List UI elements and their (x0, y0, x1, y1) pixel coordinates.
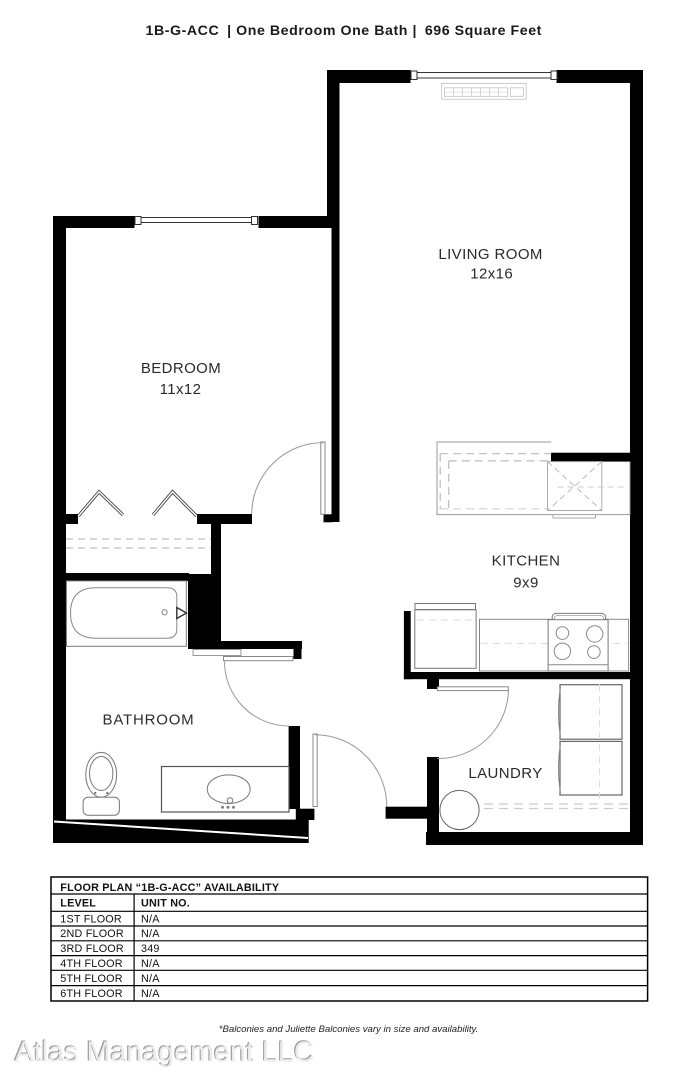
svg-text:BEDROOM: BEDROOM (141, 360, 221, 377)
svg-text:LEVEL: LEVEL (60, 898, 96, 910)
svg-text:UNIT NO.: UNIT NO. (141, 898, 190, 910)
svg-text:LAUNDRY: LAUNDRY (468, 765, 542, 782)
svg-text:*Balconies and Juliette Balcon: *Balconies and Juliette Balconies vary i… (219, 1024, 479, 1035)
svg-text:12x16: 12x16 (470, 266, 513, 283)
svg-text:KITCHEN: KITCHEN (492, 553, 561, 570)
svg-text:FLOOR PLAN “1B-G-ACC” AVAILABI: FLOOR PLAN “1B-G-ACC” AVAILABILITY (60, 882, 280, 894)
svg-text:N/A: N/A (141, 928, 160, 940)
svg-text:3RD FLOOR: 3RD FLOOR (60, 943, 124, 955)
svg-text:6TH FLOOR: 6TH FLOOR (60, 988, 122, 1000)
svg-text:349: 349 (141, 943, 160, 955)
svg-text:1ST FLOOR: 1ST FLOOR (60, 914, 122, 926)
svg-text:9x9: 9x9 (513, 575, 538, 592)
svg-text:11x12: 11x12 (160, 381, 202, 398)
svg-text:Atlas Management LLC: Atlas Management LLC (15, 1037, 315, 1069)
svg-text:N/A: N/A (141, 988, 160, 1000)
svg-text:N/A: N/A (141, 914, 160, 926)
svg-text:4TH FLOOR: 4TH FLOOR (60, 958, 122, 970)
svg-text:N/A: N/A (141, 958, 160, 970)
svg-text:LIVING ROOM: LIVING ROOM (438, 246, 542, 263)
svg-text:BATHROOM: BATHROOM (103, 712, 195, 729)
svg-text:1B-G-ACC | One Bedroom One Ba: 1B-G-ACC | One Bedroom One Bath | 696 Sq… (146, 23, 542, 39)
svg-text:2ND FLOOR: 2ND FLOOR (60, 928, 124, 940)
svg-text:N/A: N/A (141, 973, 160, 985)
svg-text:5TH FLOOR: 5TH FLOOR (60, 973, 122, 985)
